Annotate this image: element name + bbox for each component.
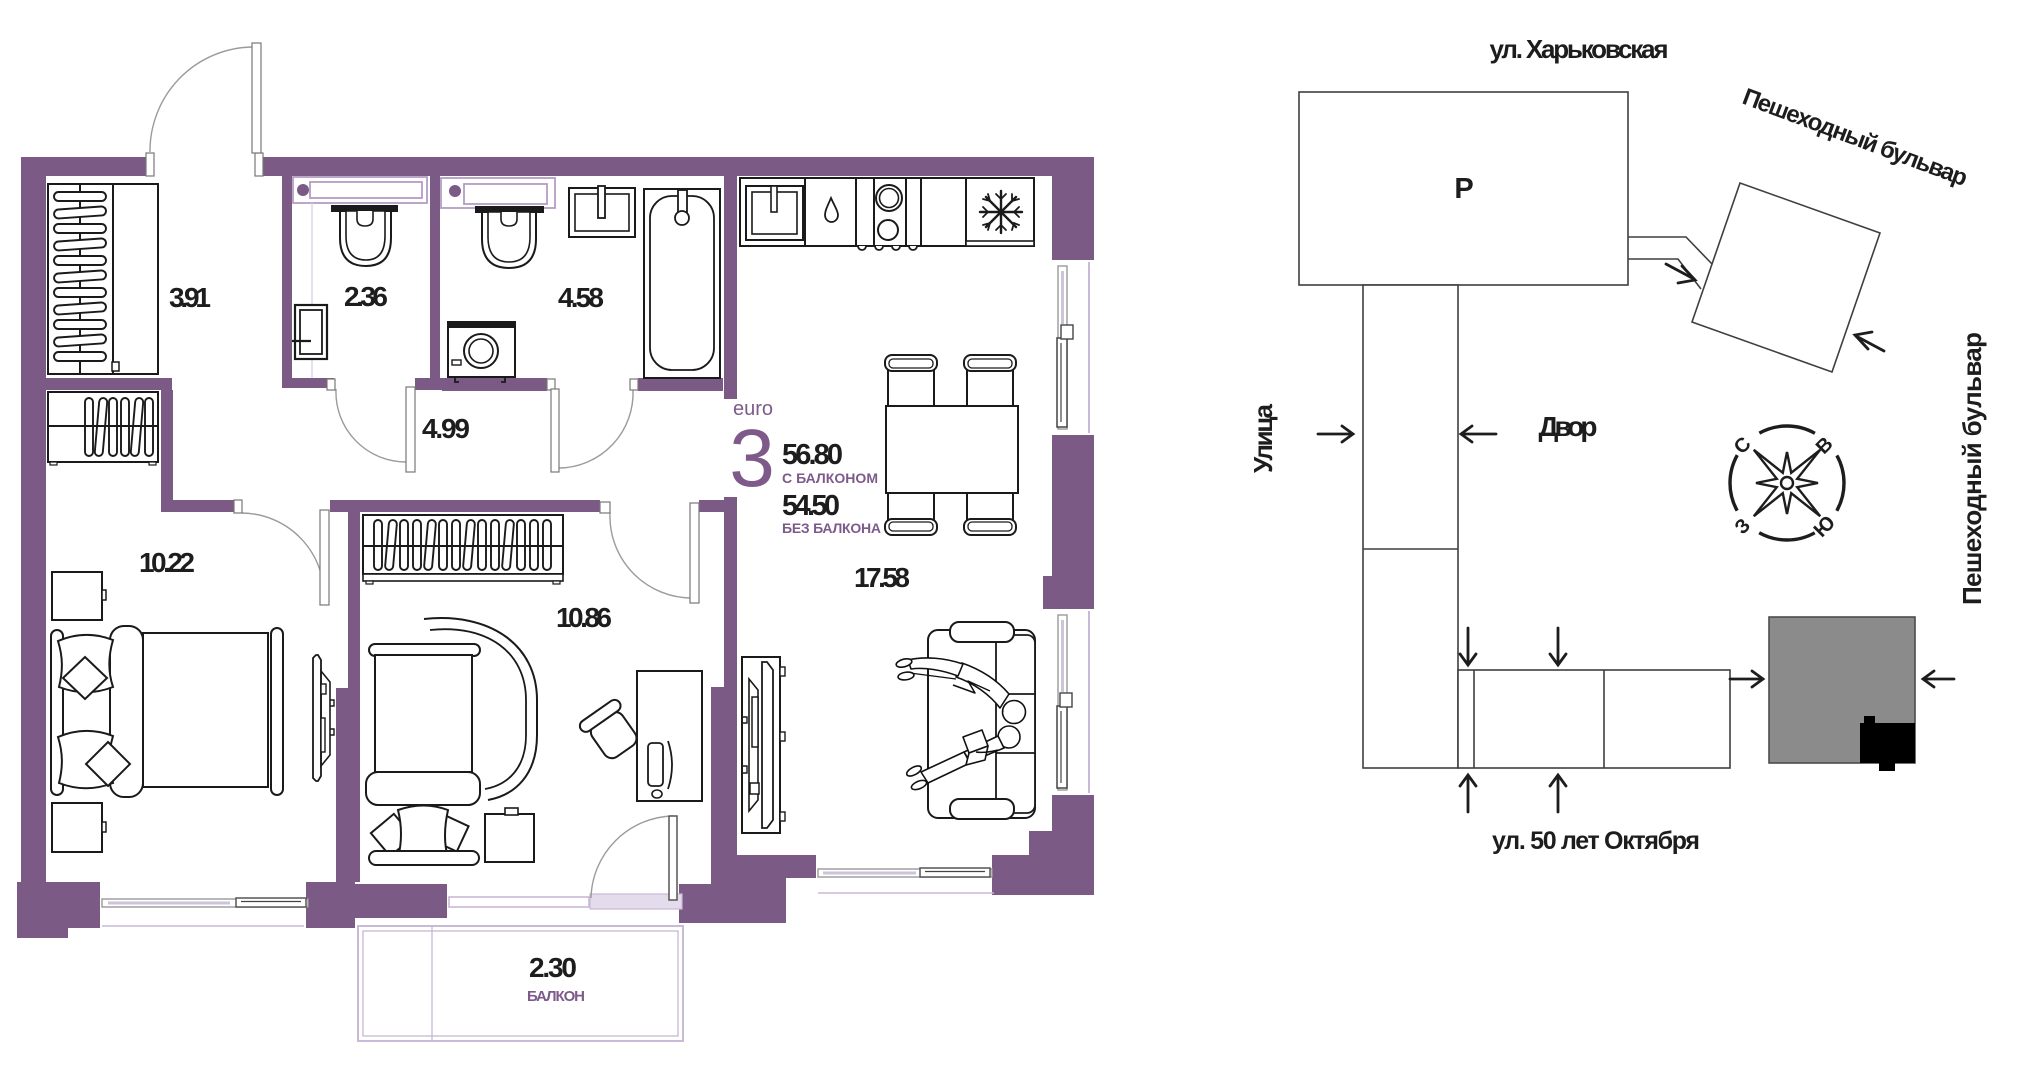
svg-text:С БАЛКОНОМ: С БАЛКОНОМ [782,470,878,486]
svg-text:Пешеходный бульвар: Пешеходный бульвар [1957,332,1987,605]
svg-text:10.22: 10.22 [139,547,195,578]
svg-text:2.30: 2.30 [529,952,577,983]
svg-text:С: С [1730,433,1756,459]
svg-text:Пешеходный бульвар: Пешеходный бульвар [1739,83,1971,192]
svg-text:ул. 50 лет Октября: ул. 50 лет Октября [1492,827,1700,855]
svg-text:Р: Р [1454,173,1473,205]
svg-text:3.91: 3.91 [169,282,211,313]
svg-text:56.80: 56.80 [782,439,843,471]
svg-text:54.50: 54.50 [782,490,840,522]
svg-text:БАЛКОН: БАЛКОН [527,988,585,1005]
svg-text:Улица: Улица [1248,403,1278,473]
svg-text:ул. Харьковская: ул. Харьковская [1490,34,1669,64]
svg-text:10.86: 10.86 [556,602,612,633]
svg-text:3: 3 [729,413,775,504]
svg-text:Двор: Двор [1539,411,1598,442]
svg-text:Ю: Ю [1810,512,1840,542]
svg-text:4.99: 4.99 [422,413,470,444]
svg-text:2.36: 2.36 [344,281,388,312]
svg-text:З: З [1731,515,1755,539]
svg-text:4.58: 4.58 [558,282,604,313]
svg-text:БЕЗ БАЛКОНА: БЕЗ БАЛКОНА [782,520,881,536]
svg-text:17.58: 17.58 [854,562,910,593]
